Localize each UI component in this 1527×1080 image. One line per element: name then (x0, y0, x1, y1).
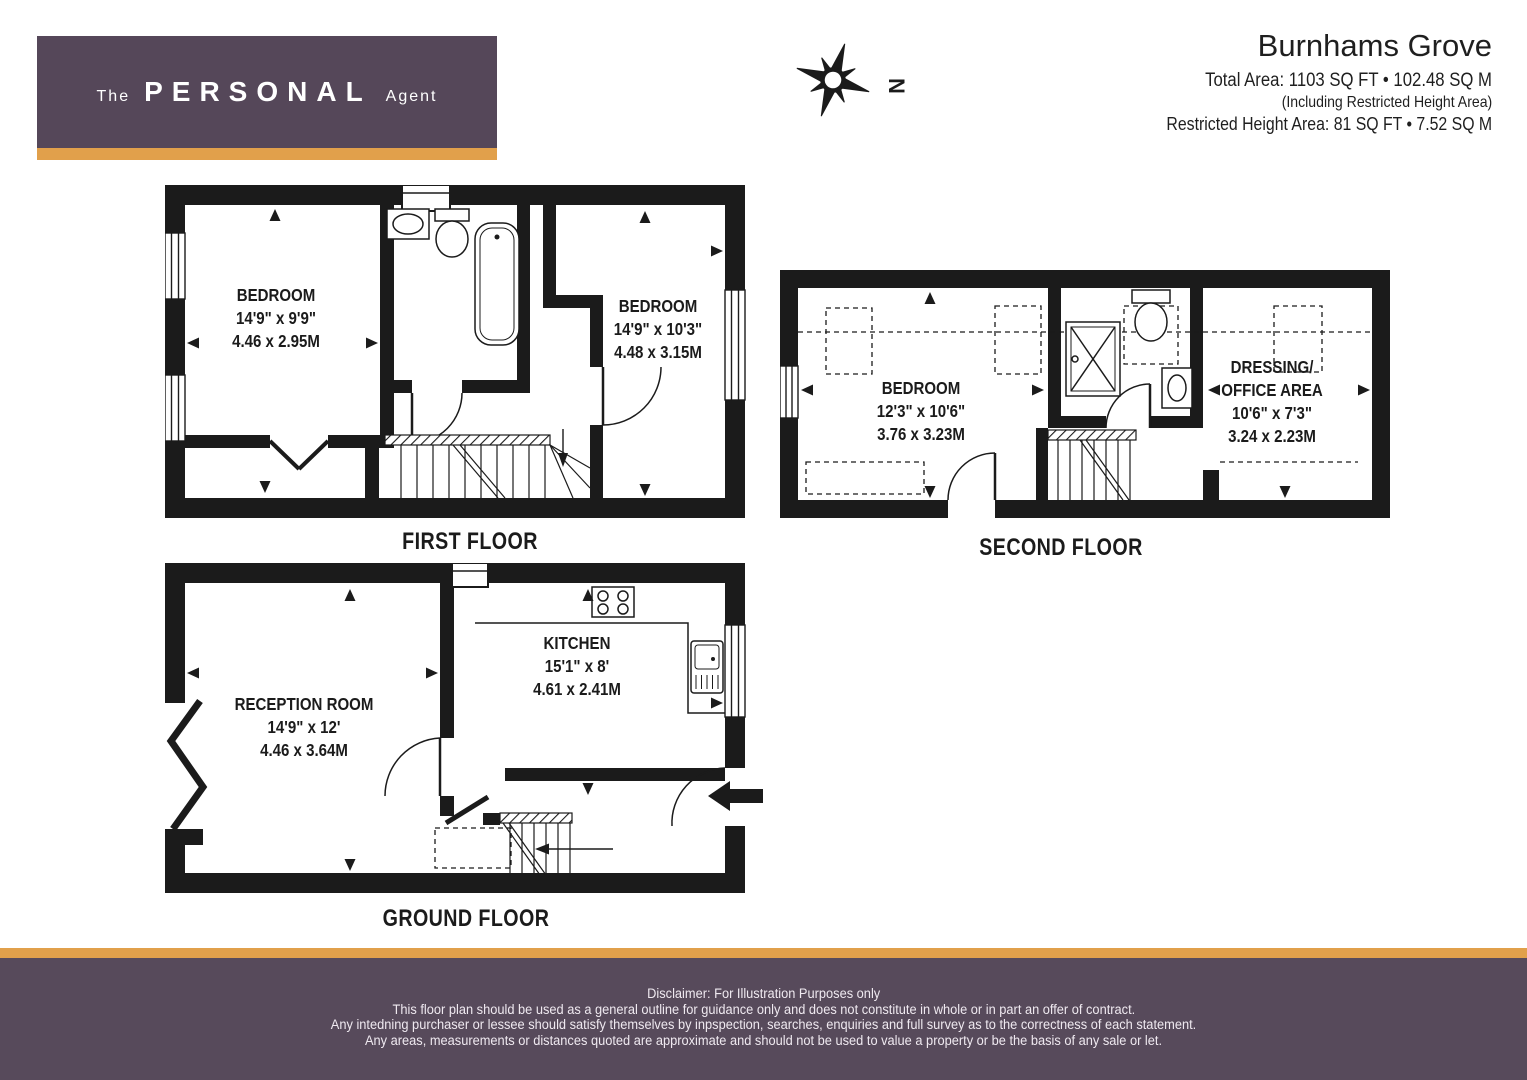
bathroom-sink-icon (387, 209, 429, 239)
footer-accent-stripe (0, 948, 1527, 958)
disclaimer-line-3: Any intedning purchaser or lessee should… (331, 1017, 1196, 1033)
property-name: Burnhams Grove (1122, 28, 1492, 64)
logo-word-the: The (97, 88, 131, 106)
room-name: BEDROOM (835, 377, 1007, 400)
room-name: KITCHEN (491, 632, 663, 655)
room-dims-imperial: 10'6" x 7'3" (1186, 402, 1358, 425)
under-stairs-storage (435, 828, 511, 868)
second-floor-stairs (1048, 430, 1136, 500)
floorplan-page: The PERSONAL Agent N Burnhams Grove Tota… (0, 0, 1527, 1080)
including-note-line: (Including Restricted Height Area) (1122, 94, 1492, 112)
title-block: Burnhams Grove Total Area: 1103 SQ FT • … (1122, 28, 1492, 135)
room-label-gf-reception: RECEPTION ROOM 14'9" x 12' 4.46 x 3.64M (218, 693, 390, 762)
room-label-ff-bedroom1: BEDROOM 14'9" x 9'9" 4.46 x 2.95M (190, 284, 362, 353)
room-name-line2: OFFICE AREA (1186, 379, 1358, 402)
sf-door-opening (948, 500, 995, 518)
room-dims-imperial: 14'9" x 12' (218, 716, 390, 739)
bay-opening-zigzag (171, 701, 203, 829)
shower-icon (1066, 322, 1120, 396)
room-dims-metric: 4.46 x 2.95M (190, 330, 362, 353)
disclaimer-line-1: Disclaimer: For Illustration Purposes on… (647, 986, 880, 1002)
room-dims-metric: 4.61 x 2.41M (491, 678, 663, 701)
first-floor-stairs (385, 429, 590, 498)
room-name: BEDROOM (190, 284, 362, 307)
room-dims-imperial: 14'9" x 9'9" (190, 307, 362, 330)
room-name: RECEPTION ROOM (218, 693, 390, 716)
room-dims-metric: 4.48 x 3.15M (572, 341, 744, 364)
disclaimer-line-2: This floor plan should be used as a gene… (392, 1002, 1135, 1018)
room-label-gf-kitchen: KITCHEN 15'1" x 8' 4.61 x 2.41M (491, 632, 663, 701)
bathtub-icon (475, 223, 519, 345)
toilet-icon (435, 209, 469, 257)
room-dims-metric: 4.46 x 3.64M (218, 739, 390, 762)
hob-icon (592, 587, 634, 617)
disclaimer-line-4: Any areas, measurements or distances quo… (365, 1033, 1162, 1049)
footer-disclaimer: Disclaimer: For Illustration Purposes on… (0, 958, 1527, 1080)
logo-accent-bar (37, 148, 497, 160)
room-label-ff-bedroom2: BEDROOM 14'9" x 10'3" 4.48 x 3.15M (572, 295, 744, 364)
compass-rose-icon: N (785, 30, 905, 132)
agency-logo-text: The PERSONAL Agent (97, 76, 438, 108)
agency-logo-box: The PERSONAL Agent (37, 36, 497, 148)
caption-ground-floor: GROUND FLOOR (351, 905, 581, 933)
logo-word-agent: Agent (386, 88, 438, 106)
room-label-sf-bedroom: BEDROOM 12'3" x 10'6" 3.76 x 3.23M (835, 377, 1007, 446)
room-label-sf-dressing: DRESSING/ OFFICE AREA 10'6" x 7'3" 3.24 … (1186, 356, 1358, 448)
room-dims-metric: 3.24 x 2.23M (1186, 425, 1358, 448)
room-name: DRESSING/ (1186, 356, 1358, 379)
room-name: BEDROOM (572, 295, 744, 318)
room-dims-imperial: 15'1" x 8' (491, 655, 663, 678)
kitchen-sink-icon (691, 641, 723, 693)
caption-second-floor: SECOND FLOOR (946, 534, 1176, 562)
restricted-area-line: Restricted Height Area: 81 SQ FT • 7.52 … (1122, 114, 1492, 135)
total-area-line: Total Area: 1103 SQ FT • 102.48 SQ M (1122, 70, 1492, 92)
room-dims-metric: 3.76 x 3.23M (835, 423, 1007, 446)
compass-north-label: N (884, 78, 905, 94)
second-floor-windows (780, 366, 798, 418)
agency-logo: The PERSONAL Agent (37, 36, 497, 160)
room-dims-imperial: 14'9" x 10'3" (572, 318, 744, 341)
room-dims-imperial: 12'3" x 10'6" (835, 400, 1007, 423)
logo-word-personal: PERSONAL (144, 76, 372, 108)
ground-floor-stairs (500, 813, 613, 875)
caption-first-floor: FIRST FLOOR (355, 528, 585, 556)
sf-toilet-icon (1132, 290, 1170, 341)
